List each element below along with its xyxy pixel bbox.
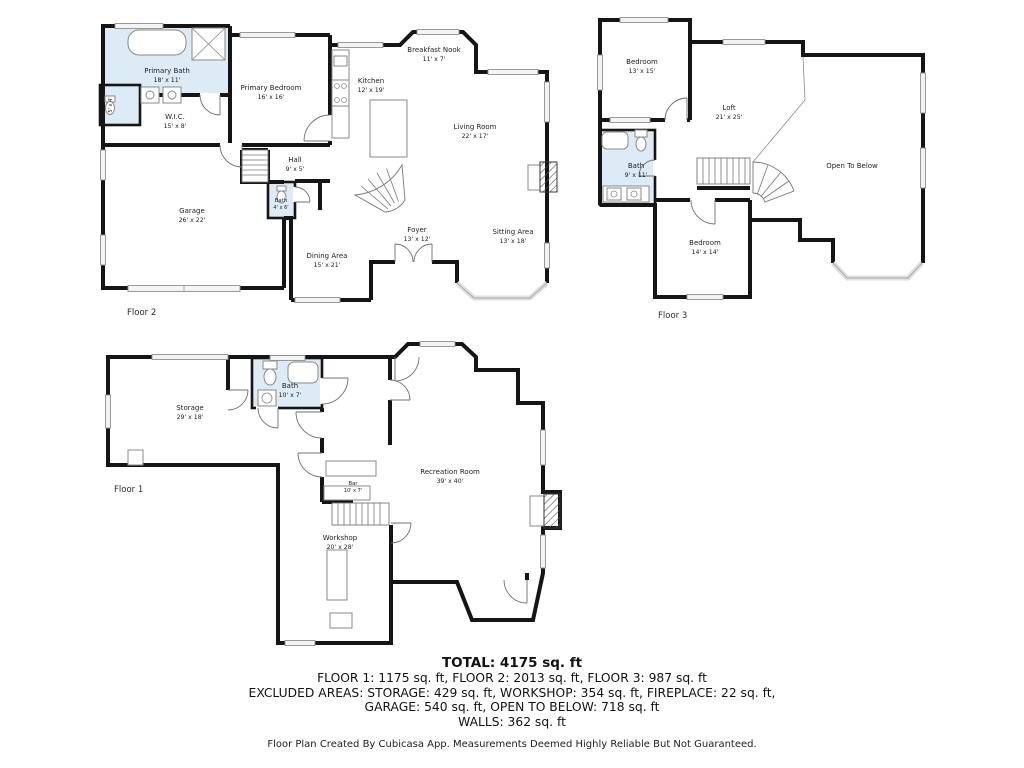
kitchen-counter (332, 50, 349, 138)
room-dims-foyer: 13' x 12' (404, 236, 431, 243)
toilet-icon (263, 361, 277, 385)
room-label-bar: Bar (348, 481, 358, 487)
floor2-label: Floor 2 (127, 308, 156, 318)
storage-box (128, 450, 143, 465)
room-label-dining-area: Dining Area (307, 252, 348, 260)
room-dims-kitchen: 12' x 19' (358, 87, 385, 94)
room-dims-workshop: 20' x 28' (327, 544, 354, 551)
workbench (327, 550, 347, 600)
room-dims-bath3: 9' x 11' (625, 172, 648, 179)
room-dims-living-room: 22' x 17' (462, 133, 489, 140)
room-label-open-to-below: Open To Below (826, 162, 878, 170)
workbench (330, 613, 352, 628)
stove-icon (332, 80, 349, 106)
bathtub-icon (288, 362, 318, 383)
summary-walls: WALLS: 362 sq. ft (0, 715, 1024, 730)
room-dims-bedroom-lower: 14' x 14' (692, 249, 719, 256)
room-label-foyer: Foyer (407, 226, 427, 234)
floor2-straight-stairs (242, 150, 268, 182)
room-dims-bedroom-upper: 13' x 15' (629, 68, 656, 75)
bathtub-icon (602, 132, 628, 149)
summary-floors: FLOOR 1: 1175 sq. ft, FLOOR 2: 2013 sq. … (0, 671, 1024, 686)
room-label-bath3: Bath (628, 162, 644, 170)
room-label-kitchen: Kitchen (358, 77, 384, 85)
room-label-recreation-room: Recreation Room (420, 468, 480, 476)
room-label-bedroom-upper: Bedroom (626, 58, 658, 66)
kitchen-island (370, 100, 407, 157)
room-dims-bar: 10' x 7' (344, 488, 362, 494)
room-dims-storage: 29' x 18' (177, 414, 204, 421)
loft-railing (753, 57, 805, 162)
room-label-sitting-area: Sitting Area (492, 228, 533, 236)
floor3-stairs (697, 158, 794, 202)
floor3-plan: Bedroom 13' x 15' Loft 21' x 25' Bath 9'… (595, 10, 935, 325)
floor1-label: Floor 1 (114, 485, 143, 495)
room-dims-closet: 5' x 4' (108, 97, 114, 112)
floor3-bay-windows (833, 263, 922, 278)
floor2-plan: Primary Bath 18' x 11' Primary Bedroom 1… (95, 10, 565, 325)
bathtub-icon (128, 30, 186, 55)
summary-excluded-line2: GARAGE: 540 sq. ft, OPEN TO BELOW: 718 s… (0, 700, 1024, 715)
room-label-workshop: Workshop (323, 534, 358, 542)
floor1-fixtures (128, 361, 560, 628)
room-dims-primary-bath: 18' x 11' (154, 77, 181, 84)
room-dims-bath2: 4' x 6' (273, 205, 288, 211)
sink-icon (258, 390, 276, 406)
room-dims-breakfast-nook: 11' x 7' (423, 56, 446, 63)
room-dims-recreation-room: 39' x 40' (437, 478, 464, 485)
room-dims-wic: 15' x 8' (164, 123, 187, 130)
room-label-garage: Garage (179, 207, 205, 215)
fireplace-icon (528, 162, 557, 192)
room-dims-loft: 21' x 25' (716, 114, 743, 121)
summary-total: TOTAL: 4175 sq. ft (0, 655, 1024, 671)
room-label-bath2: Bath (275, 198, 288, 204)
room-label-bath1: Bath (282, 382, 298, 390)
fireplace-icon (530, 494, 560, 528)
floor3-door-gaps (653, 160, 657, 176)
room-label-loft: Loft (722, 104, 735, 112)
room-label-living-room: Living Room (454, 123, 497, 131)
summary-excluded-line1: EXCLUDED AREAS: STORAGE: 429 sq. ft, WOR… (0, 686, 1024, 701)
floor2-curved-stairs (355, 165, 405, 212)
room-label-bedroom-lower: Bedroom (689, 239, 721, 247)
room-label-hall: Hall (288, 156, 301, 164)
room-dims-hall: 9' x 5' (286, 166, 305, 173)
bar-counter (326, 461, 376, 476)
room-label-primary-bedroom: Primary Bedroom (241, 84, 302, 92)
floor3-label: Floor 3 (658, 311, 687, 321)
room-label-primary-bath: Primary Bath (144, 67, 190, 75)
toilet-icon (635, 130, 647, 151)
room-label-storage: Storage (176, 404, 203, 412)
room-dims-bath1: 10' x 7' (279, 392, 302, 399)
room-dims-sitting-area: 13' x 18' (500, 238, 527, 245)
room-dims-dining-area: 15' x 21' (314, 262, 341, 269)
disclaimer: Floor Plan Created By Cubicasa App. Meas… (0, 739, 1024, 750)
floor1-plan: Storage 29' x 18' Bath 10' x 7' Recreati… (100, 340, 570, 652)
vanity-sinks-icon (603, 186, 649, 202)
area-summary: TOTAL: 4175 sq. ft FLOOR 1: 1175 sq. ft,… (0, 655, 1024, 750)
floor2-sitting-bay-windows (457, 283, 547, 298)
floor1-stairs (332, 503, 389, 525)
room-dims-garage: 26' x 22' (179, 217, 206, 224)
room-label-wic: W.I.C. (165, 113, 185, 121)
shower-icon (192, 28, 225, 60)
room-dims-primary-bedroom: 16' x 16' (258, 94, 285, 101)
room-label-breakfast-nook: Breakfast Nook (407, 46, 461, 54)
